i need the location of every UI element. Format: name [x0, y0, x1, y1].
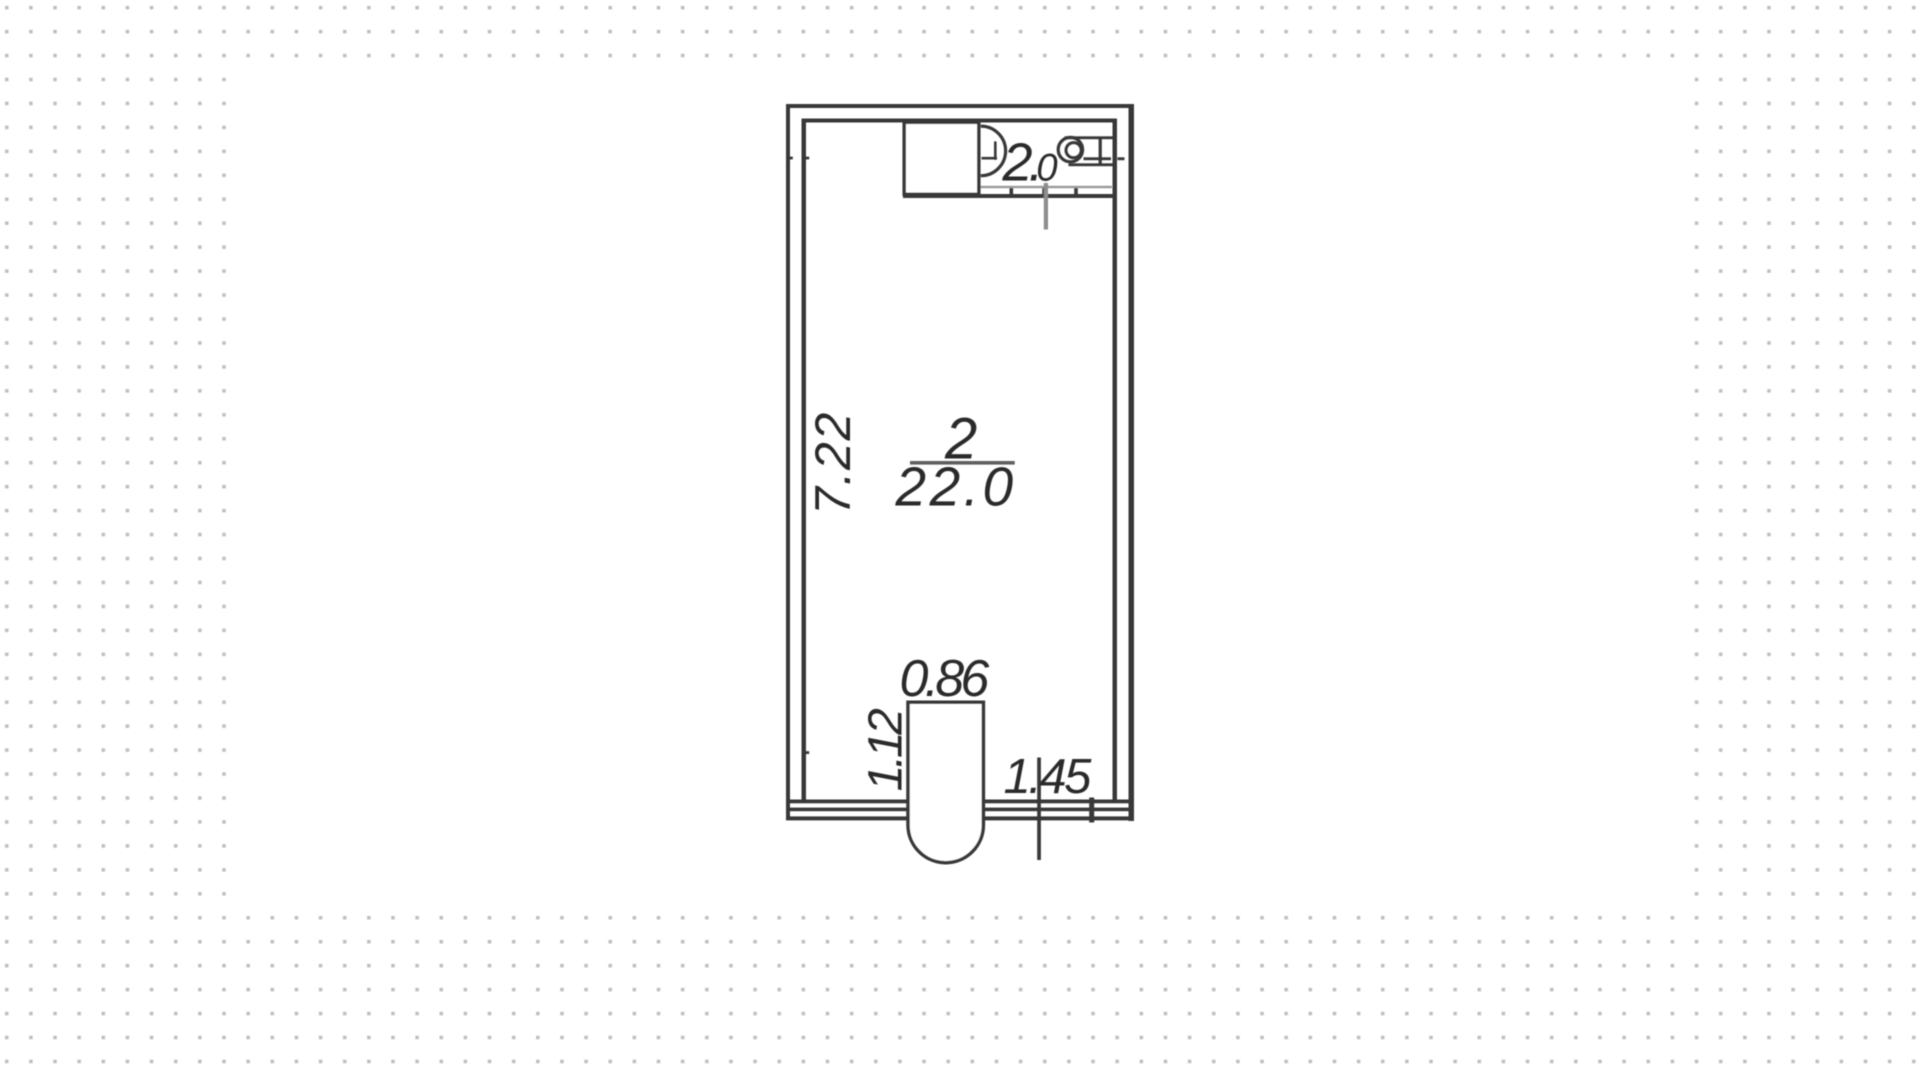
- svg-text:22.0: 22.0: [895, 456, 1017, 518]
- svg-text:1.45: 1.45: [1004, 750, 1093, 804]
- svg-text:0.86: 0.86: [900, 650, 990, 708]
- svg-text:1.12: 1.12: [860, 709, 913, 792]
- svg-text:7.22: 7.22: [805, 411, 861, 515]
- svg-text:2.: 2.: [1002, 133, 1040, 193]
- svg-text:0: 0: [1036, 147, 1058, 190]
